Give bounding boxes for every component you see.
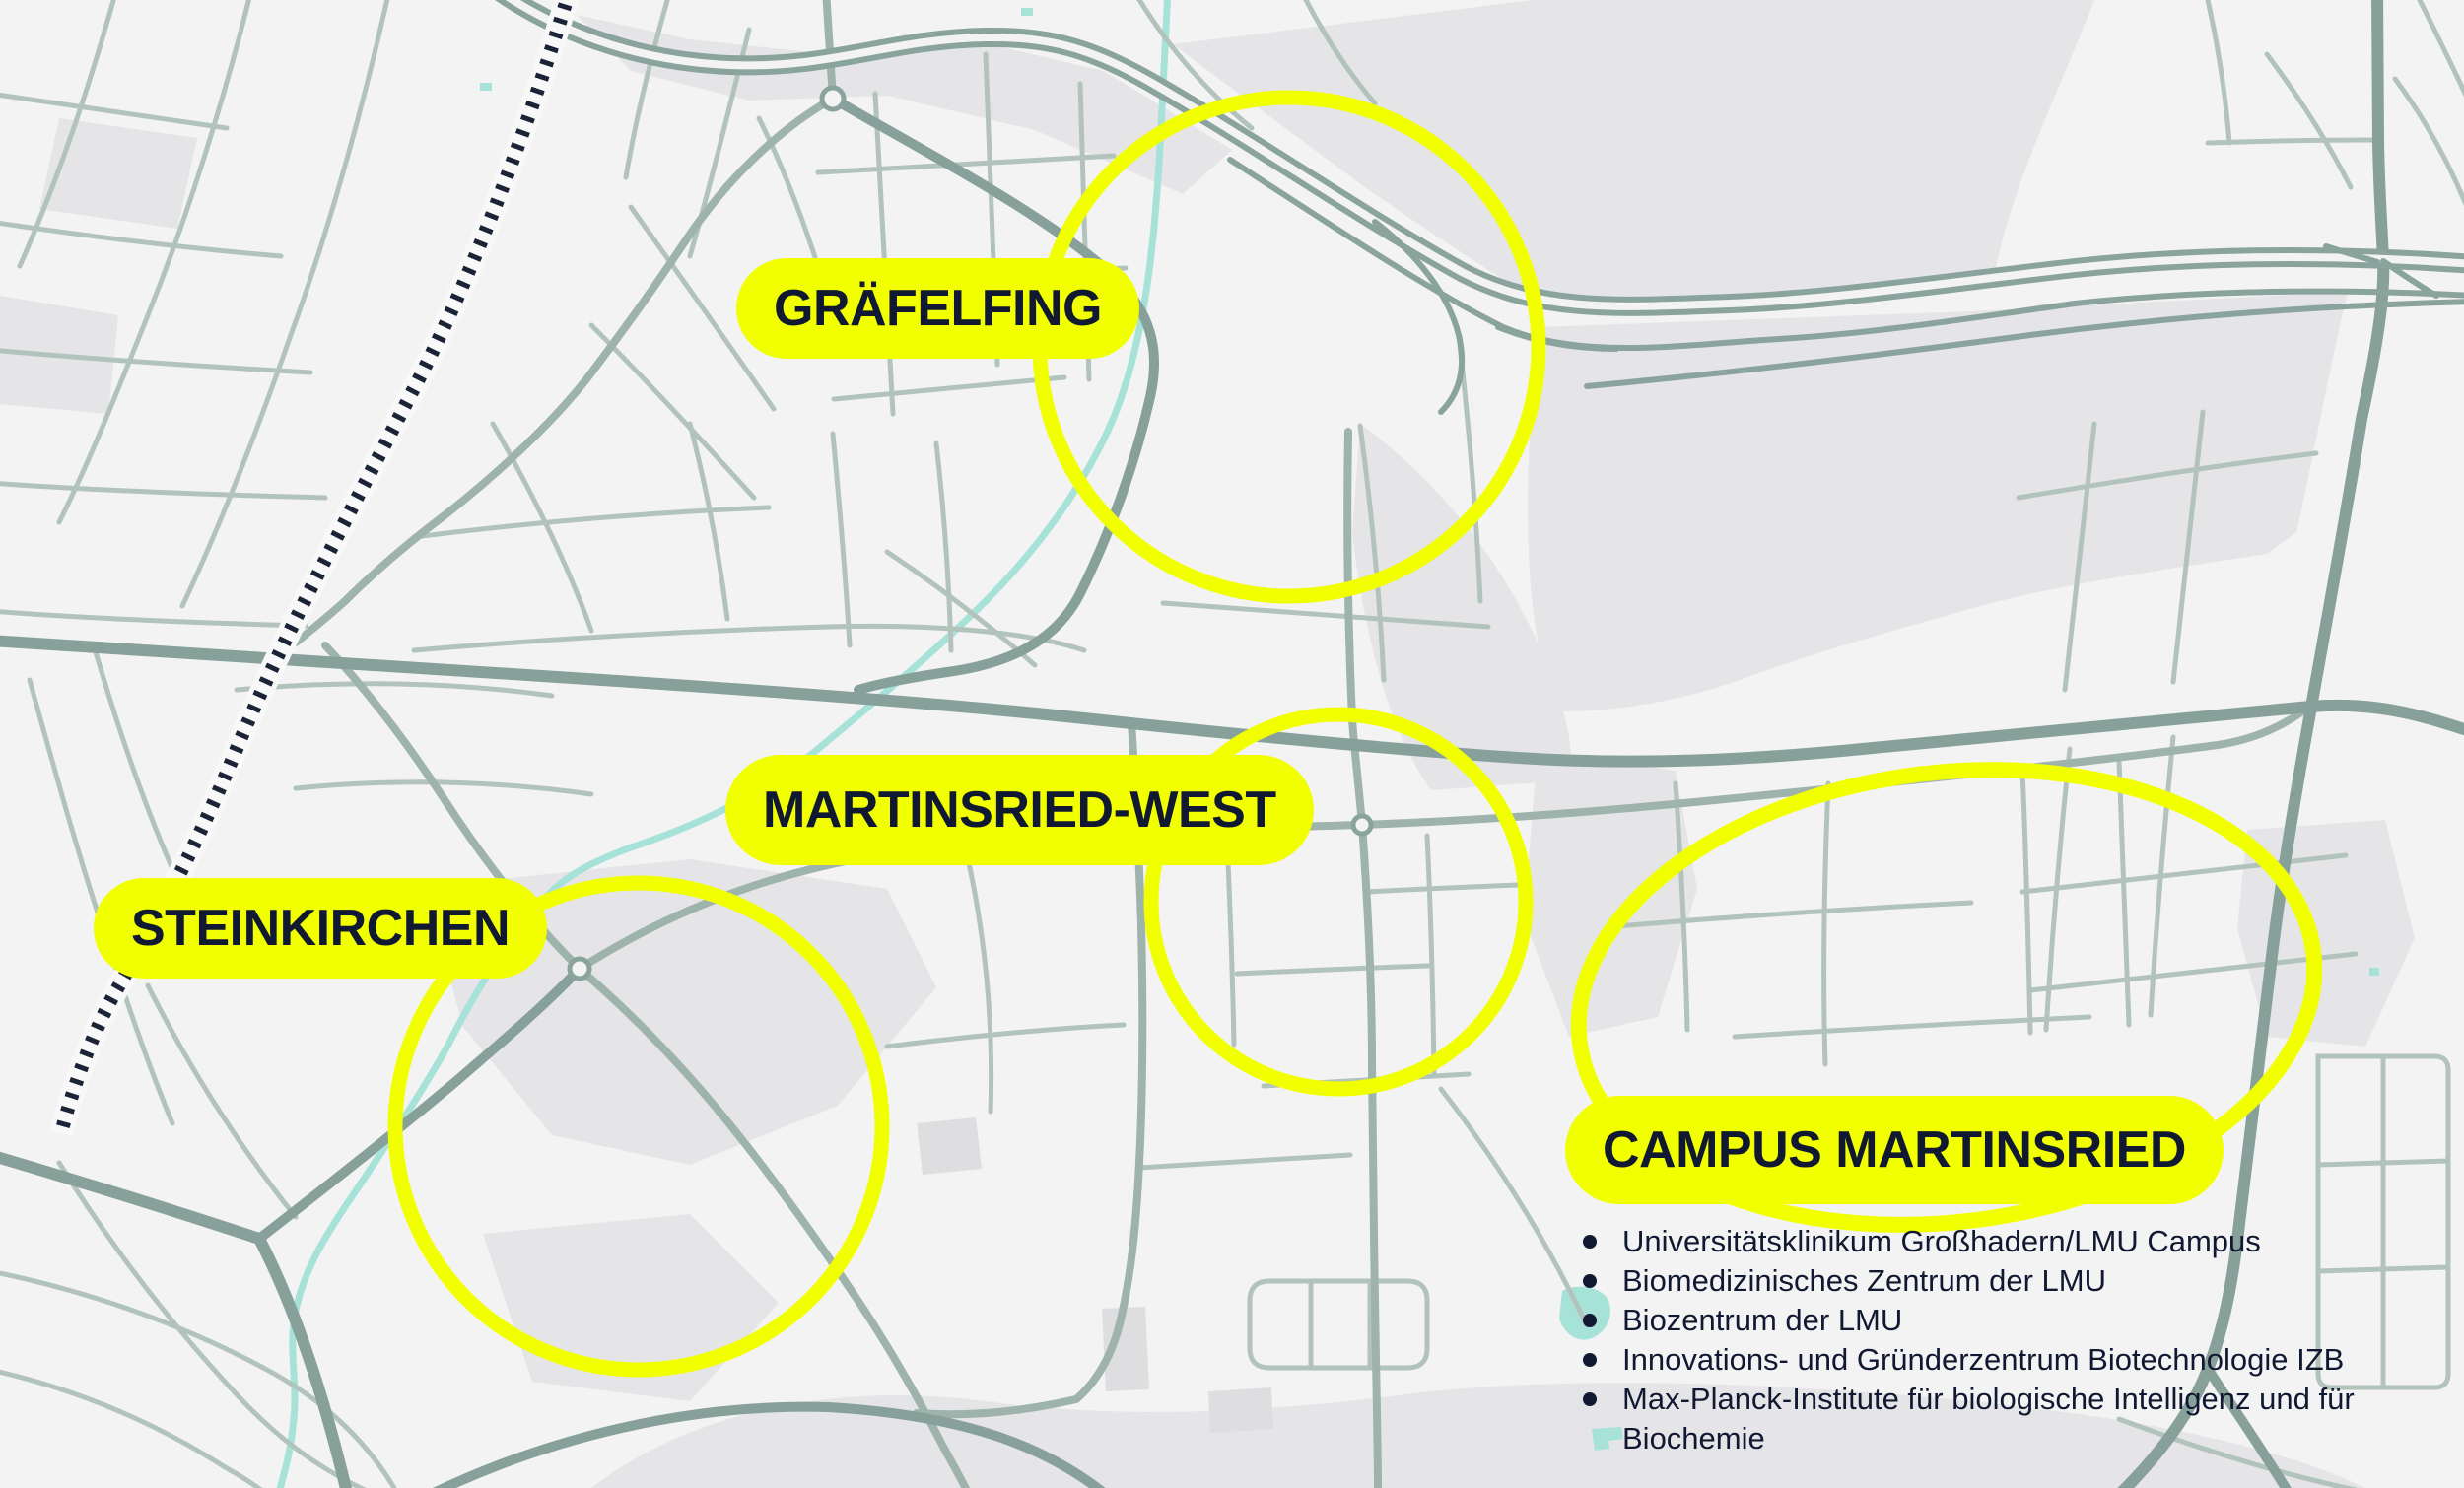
bullet-dot-icon [1583,1353,1597,1367]
area-label-steinkirchen: STEINKIRCHEN [94,878,547,979]
campus-institution-item: Innovations- und Gründerzentrum Biotechn… [1583,1340,2421,1380]
map-canvas: GRÄFELFING MARTINSRIED-WEST STEINKIRCHEN… [0,0,2464,1488]
campus-institution-item: Biomedizinisches Zentrum der LMU [1583,1261,2421,1301]
area-label-martinsried-west: MARTINSRIED-WEST [725,755,1314,865]
campus-institution-text: Max-Planck-Institute für biologische Int… [1622,1380,2421,1458]
bullet-dot-icon [1583,1274,1597,1288]
campus-institution-item: Max-Planck-Institute für biologische Int… [1583,1380,2421,1458]
campus-institution-text: Biozentrum der LMU [1622,1301,1902,1340]
campus-institution-item: Biozentrum der LMU [1583,1301,2421,1340]
campus-institution-item: Universitätsklinikum Großhadern/LMU Camp… [1583,1222,2421,1261]
area-label-graefelfing: GRÄFELFING [736,258,1139,359]
campus-institution-text: Biomedizinisches Zentrum der LMU [1622,1261,2106,1301]
area-label-campus-martinsried: CAMPUS MARTINSRIED [1565,1096,2224,1204]
bullet-dot-icon [1583,1392,1597,1406]
campus-institution-text: Universitätsklinikum Großhadern/LMU Camp… [1622,1222,2261,1261]
bullet-dot-icon [1583,1235,1597,1249]
bullet-dot-icon [1583,1314,1597,1327]
campus-institution-list: Universitätsklinikum Großhadern/LMU Camp… [1583,1222,2421,1458]
campus-institution-text: Innovations- und Gründerzentrum Biotechn… [1622,1340,2344,1380]
